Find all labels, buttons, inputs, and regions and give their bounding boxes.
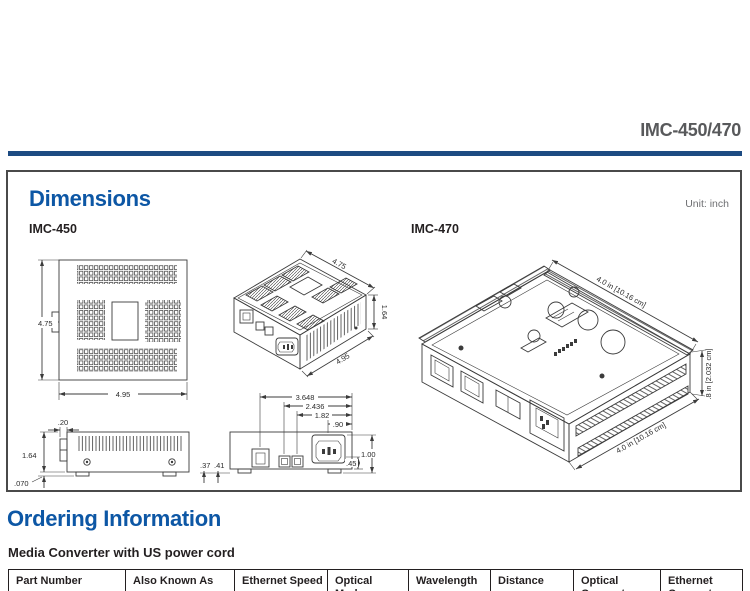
dim-450-front-182: 1.82 (315, 411, 330, 420)
dim-450-front-45: .45 (346, 459, 356, 468)
model-label-imc450: IMC-450 (29, 222, 77, 236)
dim-470-height: .8 in [2.032 cm] (704, 348, 713, 399)
dimensions-heading: Dimensions (29, 186, 151, 212)
header-rule (8, 151, 742, 156)
dim-450-front-2436: 2.436 (306, 402, 325, 411)
unit-note: Unit: inch (685, 198, 729, 210)
dim-450-front-90: .90 (333, 420, 343, 429)
imc450-front-view-drawing: 3.648 2.436 1.82 .90 .37 .41 (200, 392, 378, 483)
datasheet-page: IMC-450/470 Dimensions Unit: inch IMC-45… (0, 0, 750, 591)
dim-450-iso-height: 1.64 (380, 305, 389, 320)
page-title: IMC-450/470 (640, 120, 741, 141)
imc450-side-view-drawing: .20 1.64 .070 (14, 417, 189, 488)
col-header-also-known-as: Also Known As (126, 570, 235, 591)
dim-450-front-41: .41 (214, 461, 224, 470)
imc470-iso-view-drawing: 4.0 in [10.16 cm] .8 in [2.032 cm] 4.0 i… (419, 260, 713, 470)
col-header-part-number: Part Number (9, 570, 126, 591)
dim-450-front-37: .37 (200, 461, 210, 470)
col-header-optical-mode: Optical Mode (328, 570, 409, 591)
col-header-ethernet-speed: Ethernet Speed (235, 570, 328, 591)
dim-450-front-3648: 3.648 (296, 393, 315, 402)
table-header-row: Part Number Also Known As Ethernet Speed… (9, 570, 743, 591)
dim-450-top-height: 4.75 (38, 319, 53, 328)
dim-450-side-height: 1.64 (22, 451, 37, 460)
dim-450-front-100: 1.00 (361, 450, 376, 459)
model-label-imc470: IMC-470 (411, 222, 459, 236)
imc450-top-view-drawing: 4.75 4.95 (36, 260, 187, 400)
col-header-optical-connector: Optical Connector (574, 570, 661, 591)
dim-450-top-width: 4.95 (116, 390, 131, 399)
ordering-table: Part Number Also Known As Ethernet Speed… (8, 569, 743, 591)
col-header-distance: Distance (491, 570, 574, 591)
dim-450-side-foot: .070 (14, 479, 29, 488)
dimensions-section: Dimensions Unit: inch IMC-450 IMC-470 (6, 170, 742, 492)
col-header-wavelength: Wavelength (409, 570, 491, 591)
dim-450-side-tab: .20 (58, 418, 68, 427)
ordering-heading: Ordering Information (7, 506, 221, 532)
col-header-ethernet-connector: Ethernet Connector (661, 570, 743, 591)
ordering-subheading: Media Converter with US power cord (8, 545, 235, 560)
dimension-drawings: 4.75 4.95 (8, 246, 741, 492)
dim-450-iso-width: 4.95 (334, 351, 351, 366)
imc450-iso-view-drawing: 4.75 1.64 4.95 (234, 250, 389, 377)
